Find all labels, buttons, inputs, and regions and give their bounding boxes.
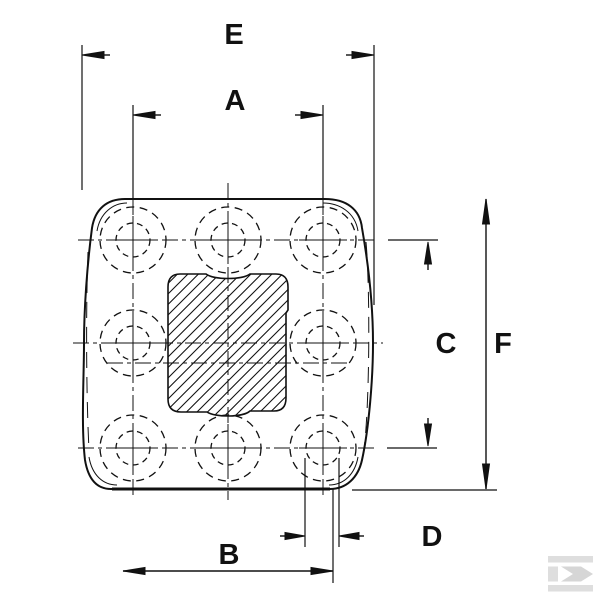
dim-label-A: A <box>225 85 246 117</box>
kramp-watermark-logo <box>548 556 593 592</box>
dimension-arrow-down <box>483 464 490 489</box>
mounting-hole <box>290 310 356 376</box>
technical-drawing-canvas: E A C F D <box>0 0 600 600</box>
dimension-arrow-left <box>339 533 359 540</box>
dimension-arrow-left <box>123 568 145 575</box>
watermark-bar-top <box>548 556 593 563</box>
dimension-C: C <box>387 240 457 448</box>
watermark-bar-bottom <box>548 585 593 592</box>
mounting-hole <box>195 415 261 481</box>
dim-label-E: E <box>224 19 243 51</box>
mounting-hole <box>100 207 166 273</box>
mounting-hole <box>100 310 166 376</box>
hatched-center-pad <box>168 274 288 416</box>
watermark-k-stem <box>548 567 558 582</box>
dim-label-F: F <box>494 328 512 360</box>
dimension-arrow-down <box>425 424 432 446</box>
mounting-hole <box>290 207 356 273</box>
dimension-arrow-right <box>352 52 374 59</box>
watermark-k-chevron <box>561 567 593 582</box>
dimension-F: F <box>352 199 512 490</box>
dim-label-D: D <box>422 521 443 553</box>
drawing-svg: E A C F D <box>0 0 600 600</box>
dimension-arrow-up <box>425 242 432 264</box>
dimension-D: D <box>280 458 442 553</box>
dimension-arrow-right <box>285 533 305 540</box>
mounting-hole <box>100 415 166 481</box>
dimension-arrow-up <box>483 199 490 224</box>
dimension-arrow-right <box>311 568 333 575</box>
dimension-A: A <box>133 85 323 199</box>
dimension-arrow-left <box>133 112 155 119</box>
dim-label-B: B <box>219 539 240 571</box>
mounting-hole <box>290 415 356 481</box>
side-accent-left <box>87 252 89 450</box>
dim-label-C: C <box>436 328 457 360</box>
dimension-arrow-right <box>301 112 323 119</box>
dimension-arrow-left <box>82 52 104 59</box>
mounting-hole <box>195 207 261 273</box>
